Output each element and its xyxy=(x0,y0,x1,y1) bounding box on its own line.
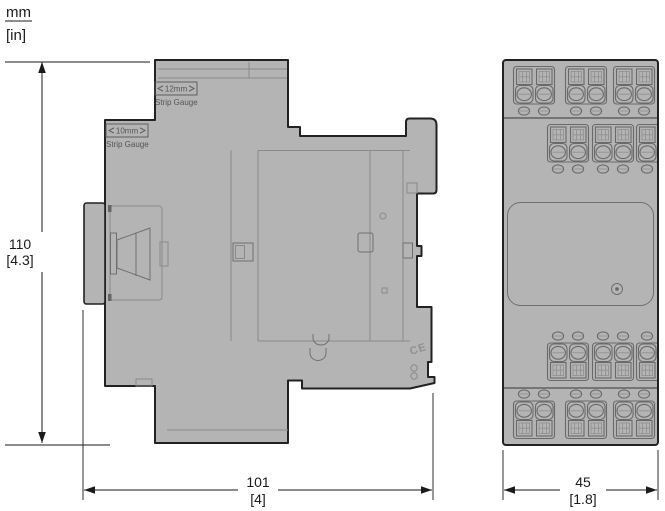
strip-gauge-10mm-caption: Strip Gauge xyxy=(106,140,149,149)
side-view: CE 12mm Strip Gauge 10mm Strip Gauge xyxy=(84,60,437,443)
side-view-outline xyxy=(105,60,437,443)
unit-mm-label: mm xyxy=(6,4,31,21)
height-in-label: [4.3] xyxy=(6,252,33,268)
depth-in-label: [4] xyxy=(250,491,266,507)
front-panel-edge xyxy=(84,203,105,304)
depth-mm-label: 101 xyxy=(246,474,270,490)
strip-gauge-10mm-value: 10mm xyxy=(116,127,139,136)
unit-in-label: [in] xyxy=(6,27,26,44)
front-view xyxy=(503,60,665,445)
units-legend: mm [in] xyxy=(5,4,32,44)
width-dimension: 45 [1.8] xyxy=(503,450,658,507)
width-mm-label: 45 xyxy=(575,474,591,490)
dimension-drawing-page: mm [in] xyxy=(0,0,665,511)
strip-gauge-12mm-value: 12mm xyxy=(165,85,188,94)
width-in-label: [1.8] xyxy=(569,491,596,507)
height-mm-label: 110 xyxy=(9,236,32,252)
drawing-canvas: mm [in] xyxy=(0,0,665,511)
strip-gauge-12mm-caption: Strip Gauge xyxy=(155,98,198,107)
